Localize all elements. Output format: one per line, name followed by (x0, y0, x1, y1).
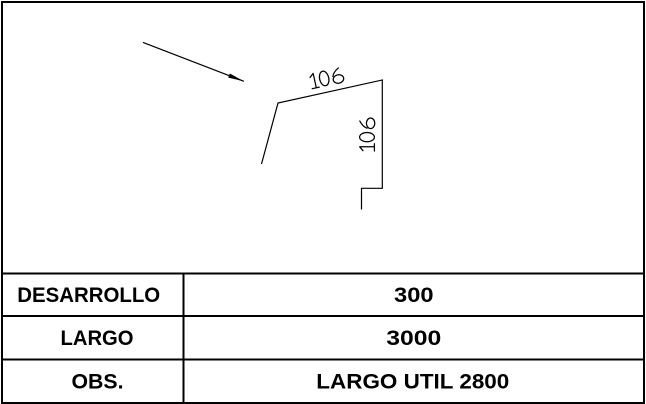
svg-text:3000: 3000 (386, 327, 441, 350)
svg-text:300: 300 (394, 284, 434, 307)
svg-text:LARGO: LARGO (61, 327, 134, 350)
svg-text:LARGO UTIL 2800: LARGO UTIL 2800 (316, 371, 509, 394)
svg-text:DESARROLLO: DESARROLLO (17, 284, 160, 307)
svg-text:OBS.: OBS. (72, 371, 124, 394)
